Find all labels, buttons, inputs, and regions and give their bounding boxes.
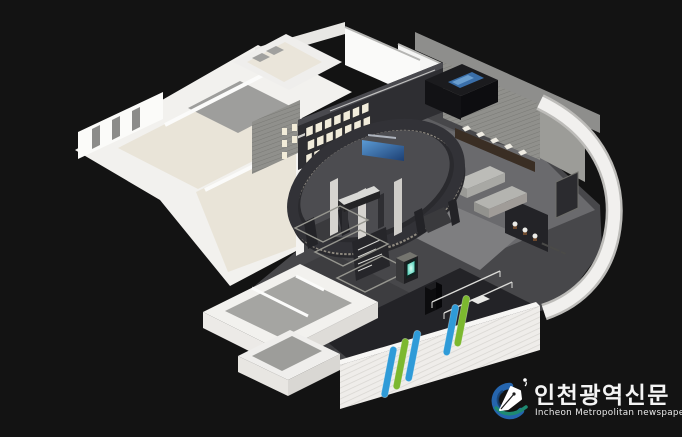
rendered-floorplan-image: 인천광역신문 Incheon Metropolitan newspaper: [0, 0, 682, 437]
lit-display: [292, 136, 297, 143]
newspaper-tagline-english: Incheon Metropolitan newspaper: [535, 408, 682, 418]
wall-slot: [112, 116, 120, 140]
isometric-scene: 인천광역신문 Incheon Metropolitan newspaper: [0, 0, 682, 437]
glow-screen-kiosk: [396, 252, 418, 284]
wall-slot: [92, 125, 100, 149]
lit-display: [282, 128, 287, 135]
lit-display: [282, 152, 287, 159]
lit-display: [282, 140, 287, 147]
newspaper-name-korean: 인천광역신문: [534, 383, 670, 409]
wall-slot: [132, 107, 140, 131]
lit-display: [292, 124, 297, 131]
apostrophe-mark: [523, 378, 527, 382]
